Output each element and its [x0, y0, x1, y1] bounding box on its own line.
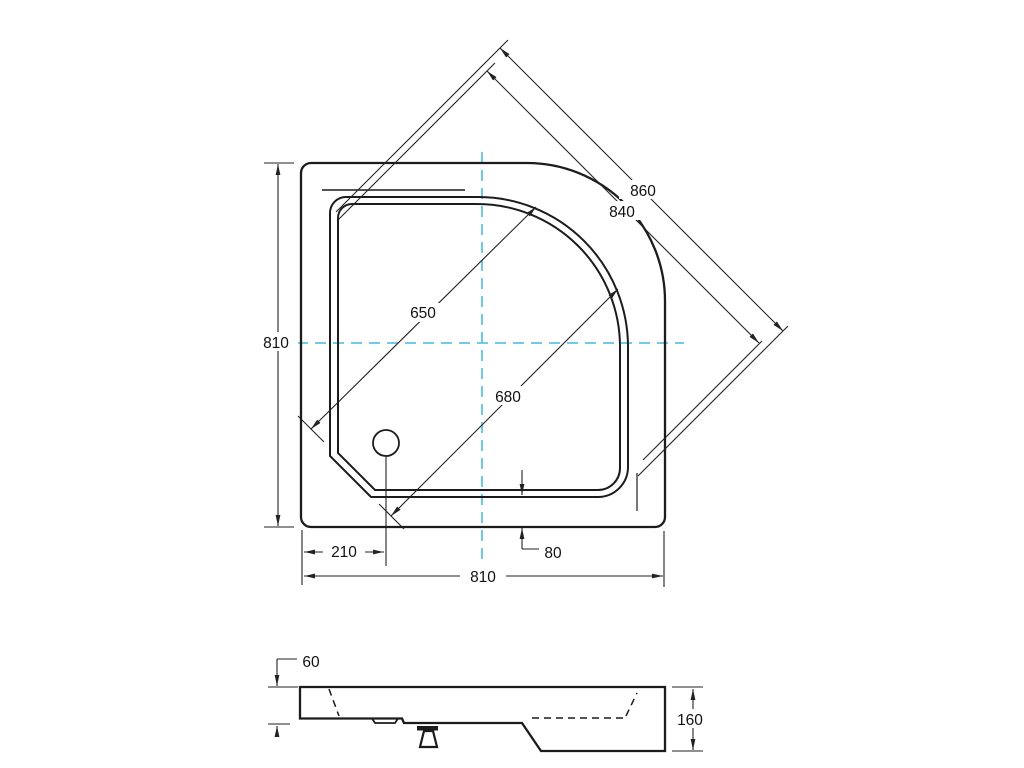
dim-label-overall-width: 810 [470, 569, 496, 586]
technical-drawing: 860 840 650 680 810 810 210 80 [0, 0, 1024, 768]
dim-label-edge-height: 60 [302, 654, 320, 671]
dim-label-basin-diagonal: 680 [495, 389, 521, 406]
dim-label-rim-diagonal: 650 [410, 305, 436, 322]
drain-flange [417, 726, 438, 731]
dim-label-outer-diagonal: 860 [630, 183, 656, 200]
dim-label-rim-to-edge: 80 [544, 545, 562, 562]
dim-label-inner-diagonal: 840 [609, 204, 635, 221]
dim-label-drain-offset: 210 [331, 544, 357, 561]
dim-label-overall-height: 810 [263, 335, 289, 352]
dim-label-total-height: 160 [677, 712, 703, 729]
drain-trap [420, 731, 437, 747]
drawing-page: 860 840 650 680 810 810 210 80 [0, 0, 1024, 768]
canvas-background [0, 0, 1024, 768]
